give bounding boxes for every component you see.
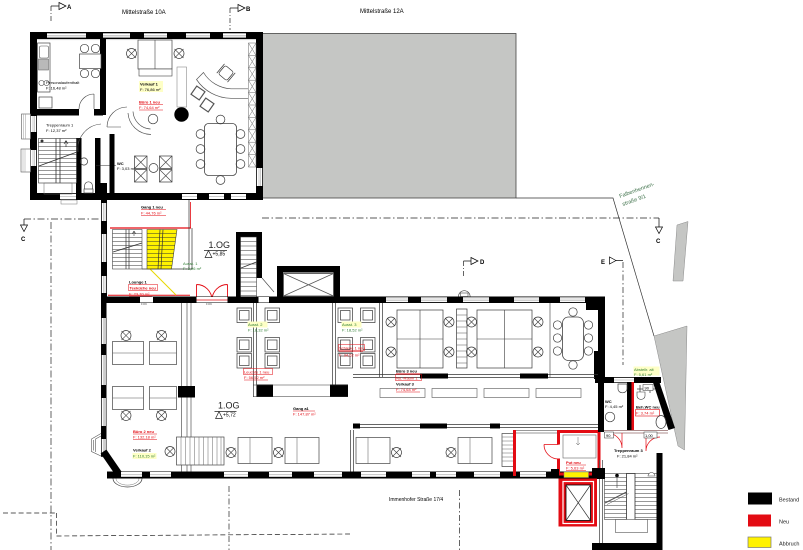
- svg-text:E: E: [601, 260, 605, 266]
- svg-text:Gang a1: Gang a1: [293, 406, 310, 411]
- svg-text:A: A: [67, 5, 72, 11]
- svg-text:F: 4,45 m²: F: 4,45 m²: [605, 404, 624, 409]
- svg-text:Mittelstraße 10A: Mittelstraße 10A: [122, 10, 166, 16]
- svg-text:Beh.WC neu: Beh.WC neu: [636, 405, 660, 410]
- svg-text:F: 5,61 m²: F: 5,61 m²: [634, 372, 653, 377]
- svg-text:F: 76,86 m²: F: 76,86 m²: [140, 87, 161, 92]
- svg-text:90: 90: [606, 433, 611, 438]
- svg-text:F: 110,15 m²: F: 110,15 m²: [133, 454, 156, 459]
- svg-text:Schiene 1 neu: Schiene 1 neu: [339, 346, 365, 351]
- svg-text:Ausst. 2: Ausst. 2: [248, 322, 263, 327]
- svg-text:1,00: 1,00: [645, 433, 654, 438]
- svg-text:F: 18,32 m²: F: 18,32 m²: [248, 328, 269, 333]
- svg-text:Ausst. 3: Ausst. 3: [342, 322, 357, 327]
- svg-text:Verkauf 2: Verkauf 2: [133, 448, 152, 453]
- svg-text:F: 3,74 m²: F: 3,74 m²: [636, 411, 655, 416]
- svg-text:Nu.-Raum 1: Nu.-Raum 1: [396, 376, 418, 381]
- svg-text:1.OG: 1.OG: [209, 240, 231, 250]
- svg-text:F: 3,96 m²: F: 3,96 m²: [183, 266, 202, 271]
- svg-text:F: 56,52 m²: F: 56,52 m²: [244, 375, 265, 380]
- svg-text:90: 90: [645, 386, 650, 391]
- svg-text:C: C: [656, 239, 661, 245]
- svg-text:+5,85: +5,85: [213, 252, 226, 258]
- svg-text:Put neu: Put neu: [566, 460, 581, 465]
- svg-text:Büro 1 neu: Büro 1 neu: [139, 100, 160, 105]
- svg-text:1.OG: 1.OG: [218, 401, 240, 411]
- svg-text:Verkauf 1: Verkauf 1: [140, 82, 159, 87]
- svg-text:Büro 2 neu: Büro 2 neu: [133, 429, 154, 434]
- svg-text:Treppenraum 3: Treppenraum 3: [614, 448, 643, 453]
- svg-text:F: 23,70 m²: F: 23,70 m²: [129, 292, 150, 297]
- svg-text:F: 132,18 m²: F: 132,18 m²: [133, 435, 156, 440]
- svg-text:F: 16,48 m²: F: 16,48 m²: [46, 86, 67, 91]
- svg-text:Treppenraum 1: Treppenraum 1: [46, 123, 74, 128]
- svg-text:Bestand: Bestand: [779, 498, 799, 504]
- svg-text:F: 74,64 m²: F: 74,64 m²: [396, 387, 417, 392]
- svg-text:Leuchte 1 neu: Leuchte 1 neu: [244, 370, 269, 375]
- svg-text:Immenhofer Straße 17/4: Immenhofer Straße 17/4: [389, 497, 443, 503]
- svg-text:F: 18,52 m²: F: 18,52 m²: [342, 328, 363, 333]
- svg-text:Teeküche neu: Teeküche neu: [130, 286, 157, 291]
- svg-text:F: 3,03 m²: F: 3,03 m²: [117, 166, 136, 171]
- svg-text:B: B: [246, 7, 251, 13]
- svg-text:D: D: [480, 260, 485, 266]
- svg-text:Gang 1 neu: Gang 1 neu: [141, 205, 163, 210]
- svg-text:F: 21,84 m²: F: 21,84 m²: [617, 454, 638, 459]
- svg-text:F: 147,87 m²: F: 147,87 m²: [293, 412, 316, 417]
- svg-text:F: 44,76 m²: F: 44,76 m²: [141, 211, 162, 216]
- svg-text:C: C: [21, 237, 26, 243]
- svg-text:Lounge 1: Lounge 1: [129, 280, 148, 285]
- svg-text:F: 5,63 m²: F: 5,63 m²: [566, 466, 585, 471]
- svg-text:F: 34,52 m²: F: 34,52 m²: [339, 353, 360, 358]
- svg-text:Mittelstraße 12A: Mittelstraße 12A: [360, 9, 404, 15]
- svg-text:F: 12,37 m²: F: 12,37 m²: [46, 128, 67, 133]
- svg-text:F: 74,64 m²: F: 74,64 m²: [139, 105, 160, 110]
- svg-text:+5,72: +5,72: [223, 413, 236, 419]
- svg-text:Verkauf 3: Verkauf 3: [396, 382, 415, 387]
- svg-text:Neu: Neu: [779, 520, 789, 526]
- svg-text:Abbruch: Abbruch: [779, 542, 800, 548]
- svg-text:Personalaufenthalt: Personalaufenthalt: [46, 80, 80, 85]
- svg-text:Büro 3 neu: Büro 3 neu: [396, 369, 417, 374]
